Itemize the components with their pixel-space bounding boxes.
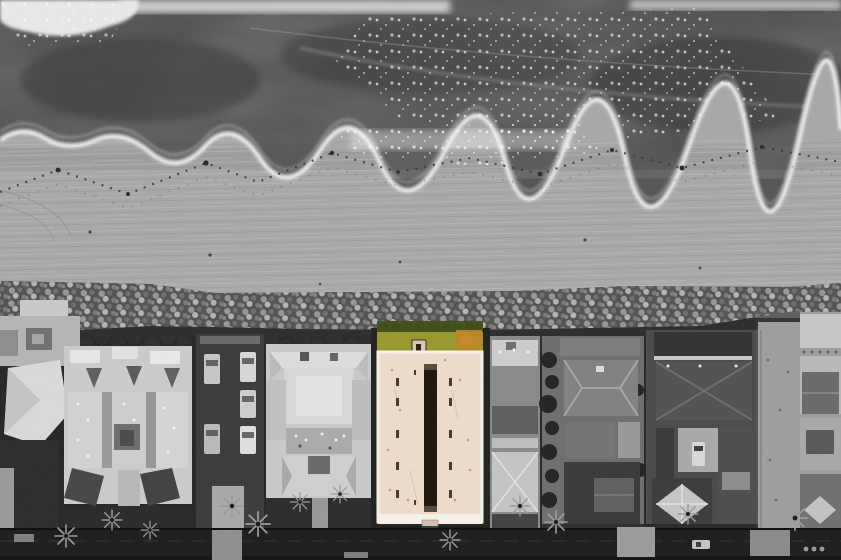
aerial-photo [0,0,841,560]
film-grain-overlay [0,0,841,560]
